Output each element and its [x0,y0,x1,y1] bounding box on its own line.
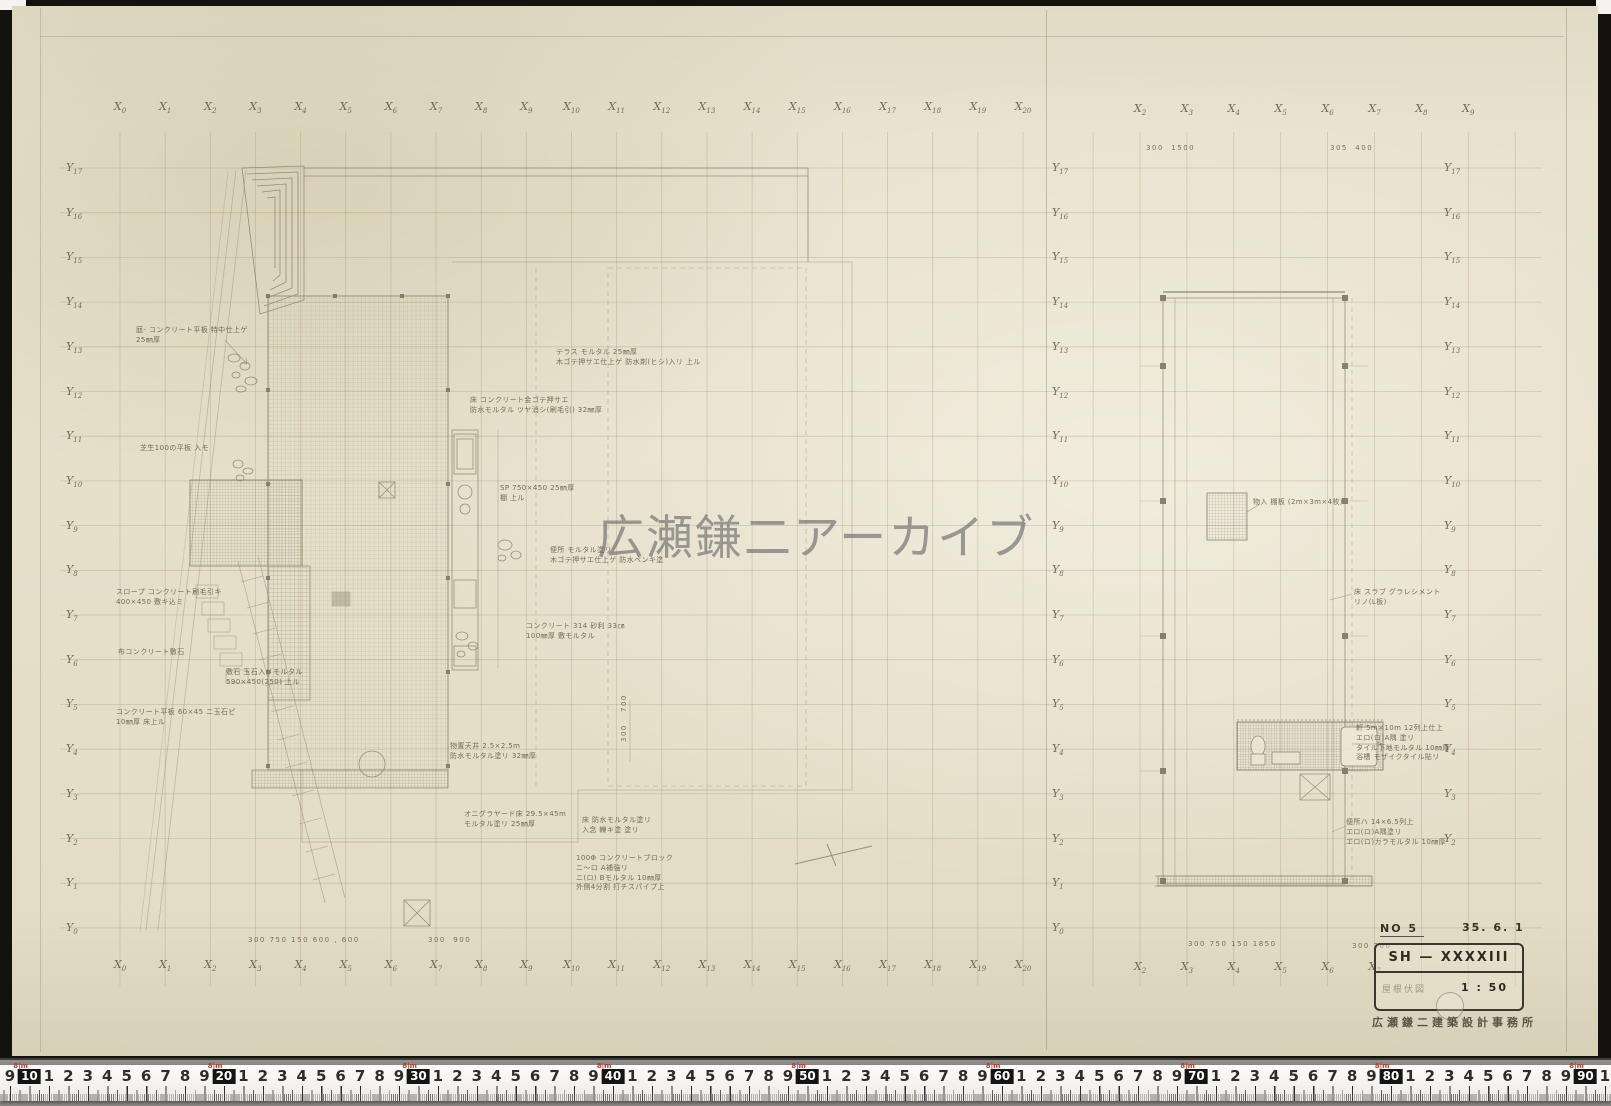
axis-label: Y8 [66,563,78,578]
tape-number: 3 [83,1067,93,1085]
axis-label: X10 [563,100,580,115]
dimension-text: 305 400 [1330,144,1373,152]
tape-number: 3 [1250,1067,1260,1085]
tape-number: 1 [1600,1067,1610,1085]
tape-number: 2 [1230,1067,1240,1085]
axis-label: Y8 [1052,563,1064,578]
axis-label: Y8 [1444,563,1456,578]
axis-label: X16 [834,100,851,115]
axis-label: X6 [385,100,397,115]
axis-label: Y17 [66,161,82,176]
tape-number: 3 [472,1067,482,1085]
tape-number: 2 [452,1067,462,1085]
axis-label: X1 [159,100,171,115]
handwritten-note: 庭- コンクリート平板 特中仕上ゲ 25㎜厚 [136,326,248,346]
handwritten-note: 軒 5m×10m 12列上仕上 エロ(ロ)A隅 塗リ タイル下地モルタル 10㎜… [1356,724,1450,763]
tape-number: 8 [1541,1067,1551,1085]
tape-number: 6 [1113,1067,1123,1085]
axis-label: Y11 [1444,429,1460,444]
tape-number: 7 [355,1067,365,1085]
axis-label: Y10 [1444,474,1460,489]
axis-label: X2 [1134,960,1146,975]
axis-label: X4 [294,100,306,115]
axis-label: Y13 [1444,340,1460,355]
tape-decade-number: 50 [796,1069,819,1084]
tape-decade-number: 80 [1380,1069,1403,1084]
axis-label: Y16 [66,206,82,221]
axis-label: X15 [789,958,806,973]
axis-label: Y9 [1444,519,1456,534]
axis-label: Y5 [66,697,78,712]
tape-number: 4 [102,1067,112,1085]
axis-label: Y17 [1444,161,1460,176]
axis-label: X2 [1134,102,1146,117]
tape-number: 3 [666,1067,676,1085]
axis-label: X20 [1015,958,1032,973]
axis-label: Y5 [1444,697,1456,712]
measuring-tape: 9108|m123456789208|m123456789308|m123456… [0,1058,1611,1106]
axis-label: Y3 [1052,787,1064,802]
axis-label: Y1 [1052,876,1064,891]
tape-number: 4 [880,1067,890,1085]
title-block-frame: SH — XXXXIII 屋根伏図 1 : 50 [1374,943,1524,1011]
tape-number: 8 [374,1067,384,1085]
handwritten-note: 便所ハ 14×6.5列上 エロ(ロ)A隅塗リ エロ(ロ)カラモルタル 10㎜厚 [1346,818,1446,847]
axis-label: X11 [608,100,625,115]
axis-label: Y12 [1444,385,1460,400]
tape-decade-number: 60 [991,1069,1014,1084]
tape-number: 5 [1094,1067,1104,1085]
dimension-text: 300 900 [428,936,471,944]
tape-unit-mark: 8|m [597,1063,612,1070]
tape-number: 2 [841,1067,851,1085]
tape-number: 7 [160,1067,170,1085]
axis-label: X14 [744,958,761,973]
sheet-number: NO 5 [1380,922,1424,937]
axis-label: X6 [385,958,397,973]
axis-label: X2 [204,958,216,973]
tape-number: 2 [1036,1067,1046,1085]
tape-number: 1 [822,1067,832,1085]
axis-label: Y3 [1444,787,1456,802]
axis-label: X4 [1228,960,1240,975]
handwritten-note: 床 コンクリート金ゴテ押サエ 防水モルタル ツヤ消シ(刷毛引) 32㎜厚 [470,396,602,416]
tape-number: 6 [335,1067,345,1085]
tape-number: 7 [1133,1067,1143,1085]
tape-number: 7 [1522,1067,1532,1085]
axis-label: X18 [924,958,941,973]
axis-label: Y6 [1444,653,1456,668]
axis-label: X15 [789,100,806,115]
axis-label: X19 [969,958,986,973]
tape-number: 8 [763,1067,773,1085]
tape-number: 2 [647,1067,657,1085]
tape-number: 3 [861,1067,871,1085]
handwritten-note: 敷石 玉石入リモルタル 590×450(250) 上ル [226,668,303,688]
tape-number: 7 [549,1067,559,1085]
dimension-text: 300 750 150 1850 [1188,940,1277,948]
tape-number: 4 [1464,1067,1474,1085]
axis-label: Y6 [66,653,78,668]
tape-number: 1 [627,1067,637,1085]
dimension-text: 300 [620,724,628,742]
project-code: SH — XXXXIII [1376,945,1522,973]
tape-number: 3 [1444,1067,1454,1085]
axis-label: X3 [249,958,261,973]
axis-label: X17 [879,100,896,115]
tape-decade-number: 40 [602,1069,625,1084]
tape-unit-mark: 8|m [13,1063,28,1070]
tape-number: 2 [1425,1067,1435,1085]
axis-label: Y2 [66,832,78,847]
tape-number: 7 [744,1067,754,1085]
axis-label: Y9 [1052,519,1064,534]
axis-label: X0 [114,958,126,973]
tape-number: 4 [1269,1067,1279,1085]
handwritten-note: コンクリート平板 60×45 ニ玉石ピ 10㎜厚 床上ル [116,708,236,728]
handwritten-note: 100Φ コンクリートブロック ニ〜ロ A補強リ ニ(ロ) Bモルタル 10㎜厚… [576,854,673,893]
tape-unit-mark: 8|m [1569,1063,1584,1070]
tape-decade-number: 90 [1574,1069,1597,1084]
tape-number: 5 [899,1067,909,1085]
axis-label: X13 [699,100,716,115]
axis-label: Y10 [1052,474,1068,489]
tape-unit-mark: 8|m [208,1063,223,1070]
tape-number: 8 [1152,1067,1162,1085]
tape-decade-number: 30 [407,1069,430,1084]
tape-number: 1 [433,1067,443,1085]
tape-number: 1 [238,1067,248,1085]
axis-label: X14 [744,100,761,115]
axis-label: X3 [1181,102,1193,117]
axis-label: X7 [430,958,442,973]
axis-label: Y15 [1444,250,1460,265]
tape-number: 8 [180,1067,190,1085]
axis-label: Y16 [1052,206,1068,221]
axis-label: Y17 [1052,161,1068,176]
handwritten-note: 床 防水モルタル塗リ 入念 轢キ塗 塗リ [582,816,651,836]
tape-unit-mark: 8|m [1375,1063,1390,1070]
tape-number: 3 [1055,1067,1065,1085]
tape-number: 7 [938,1067,948,1085]
handwritten-note: 芝生100の平板 入モ [140,444,209,454]
tape-number: 5 [1288,1067,1298,1085]
axis-label: X19 [969,100,986,115]
axis-label: X12 [653,100,670,115]
axis-label: Y15 [1052,250,1068,265]
tape-number: 1 [1211,1067,1221,1085]
dimension-text: 300 750 150 600 , 600 [248,936,360,944]
axis-label: Y1 [66,876,78,891]
axis-label: Y6 [1052,653,1064,668]
axis-label: X17 [879,958,896,973]
axis-label: X12 [653,958,670,973]
tape-number: 2 [63,1067,73,1085]
handwritten-note: テラス モルタル 25㎜厚 木ゴテ押サエ仕上ゲ 防水剤(ヒシ)入リ 上ル [556,348,701,368]
axis-label: Y11 [1052,429,1068,444]
axis-label: X5 [1275,960,1287,975]
axis-label: X6 [1321,960,1333,975]
axis-label: Y12 [1052,385,1068,400]
axis-label: X5 [340,100,352,115]
axis-label: Y7 [1052,608,1064,623]
tape-number: 4 [1075,1067,1085,1085]
axis-label: X13 [699,958,716,973]
tape-number: 5 [1483,1067,1493,1085]
tape-number: 8 [569,1067,579,1085]
axis-label: X7 [1368,102,1380,117]
handwritten-note: 物置天井 2.5×2.5m 防水モルタル塗リ 32㎜厚 [450,742,536,762]
handwritten-note: 物入 棚板 (2m×3m×4枚) [1253,498,1343,508]
axis-label: Y7 [1444,608,1456,623]
axis-label: Y9 [66,519,78,534]
tape-unit-mark: 8|m [402,1063,417,1070]
axis-label: Y14 [1444,295,1460,310]
axis-label: Y7 [66,608,78,623]
dimension-text: 700 [620,694,628,712]
tape-decade-number: 70 [1185,1069,1208,1084]
handwritten-note: コンクリート 314 砂利 33㎝ 100㎜厚 敷モルタル [526,622,625,642]
tape-unit-mark: 8|m [1180,1063,1195,1070]
axis-label: Y0 [1052,921,1064,936]
tape-number: 7 [1327,1067,1337,1085]
tape-number: 4 [491,1067,501,1085]
axis-label: Y14 [66,295,82,310]
axis-label: X2 [204,100,216,115]
tape-number: 6 [530,1067,540,1085]
axis-label: Y11 [66,429,82,444]
axis-label: X8 [475,100,487,115]
axis-label: X5 [1275,102,1287,117]
handwritten-note: スロープ コンクリート刷毛引キ 400×450 敷キ込ミ [116,588,222,608]
office-stamp: 広瀬鎌二建築設計事務所 [1372,1014,1542,1030]
tape-number: 1 [44,1067,54,1085]
tape-numbers: 9108|m123456789208|m123456789308|m123456… [0,1065,1611,1101]
tape-number: 6 [724,1067,734,1085]
axis-label: X1 [159,958,171,973]
axis-label: Y2 [1052,832,1064,847]
tape-decade-number: 10 [18,1069,41,1084]
tape-number: 4 [297,1067,307,1085]
axis-label: X9 [520,100,532,115]
axis-label: Y3 [66,787,78,802]
axis-label: Y5 [1052,697,1064,712]
axis-label: Y14 [1052,295,1068,310]
axis-label: Y13 [1052,340,1068,355]
axis-label: X9 [520,958,532,973]
axis-label: Y15 [66,250,82,265]
axis-label: X4 [294,958,306,973]
axis-label: X11 [608,958,625,973]
axis-label: X20 [1015,100,1032,115]
axis-label: X18 [924,100,941,115]
handwritten-note: 床 スラブ グラレシメント リノ(L板) [1354,588,1441,608]
tape-number: 5 [705,1067,715,1085]
tape-number: 5 [510,1067,520,1085]
axis-label: Y12 [66,385,82,400]
axis-label: X9 [1462,102,1474,117]
archive-watermark: 広瀬鎌二アーカイブ [597,499,1035,568]
tape-decade-number: 20 [213,1069,236,1084]
tape-unit-mark: 8|m [986,1063,1001,1070]
axis-label: X7 [430,100,442,115]
axis-label: X16 [834,958,851,973]
axis-label: Y13 [66,340,82,355]
scanned-drawing-sheet: X0X0X1X1X2X2X3X3X4X4X5X5X6X6X7X7X8X8X9X9… [0,0,1611,1106]
tape-number: 4 [686,1067,696,1085]
handwritten-note: オニグラヤード床 29.5×45m モルタル塗リ 25㎜厚 [464,810,566,830]
drawing-scale: 1 : 50 [1461,981,1508,994]
axis-label: X6 [1321,102,1333,117]
tape-number: 6 [919,1067,929,1085]
tape-number: 8 [1347,1067,1357,1085]
tape-number: 5 [121,1067,131,1085]
tape-unit-mark: 8|m [791,1063,806,1070]
tape-number: 1 [1405,1067,1415,1085]
axis-label: X4 [1228,102,1240,117]
axis-label: X0 [114,100,126,115]
sheet-date: 35. 6. 1 [1462,921,1525,934]
handwritten-note: 布コンクリート敷石 [118,648,185,658]
title-block: NO 5 35. 6. 1 SH — XXXXIII 屋根伏図 1 : 50 広… [1372,922,1532,1032]
tape-number: 6 [1308,1067,1318,1085]
axis-label: X8 [475,958,487,973]
tape-number: 6 [141,1067,151,1085]
axis-label: X5 [340,958,352,973]
axis-label: X3 [1181,960,1193,975]
tape-body: 9108|m123456789208|m123456789308|m123456… [0,1065,1611,1101]
axis-label: Y4 [66,742,78,757]
tape-number: 5 [316,1067,326,1085]
tape-number: 1 [1016,1067,1026,1085]
handwritten-note: SP 750×450 25㎜厚 棚 上ル [500,484,575,504]
axis-label: X3 [249,100,261,115]
axis-label: Y0 [66,921,78,936]
tape-number: 6 [1502,1067,1512,1085]
axis-label: Y10 [66,474,82,489]
axis-label: X8 [1415,102,1427,117]
dimension-text: 300 1500 [1146,144,1195,152]
drawing-title: 屋根伏図 [1382,982,1426,995]
tape-number: 8 [958,1067,968,1085]
axis-label: Y16 [1444,206,1460,221]
axis-label: Y4 [1052,742,1064,757]
axis-label: X10 [563,958,580,973]
tape-number: 3 [277,1067,287,1085]
tape-number: 2 [258,1067,268,1085]
